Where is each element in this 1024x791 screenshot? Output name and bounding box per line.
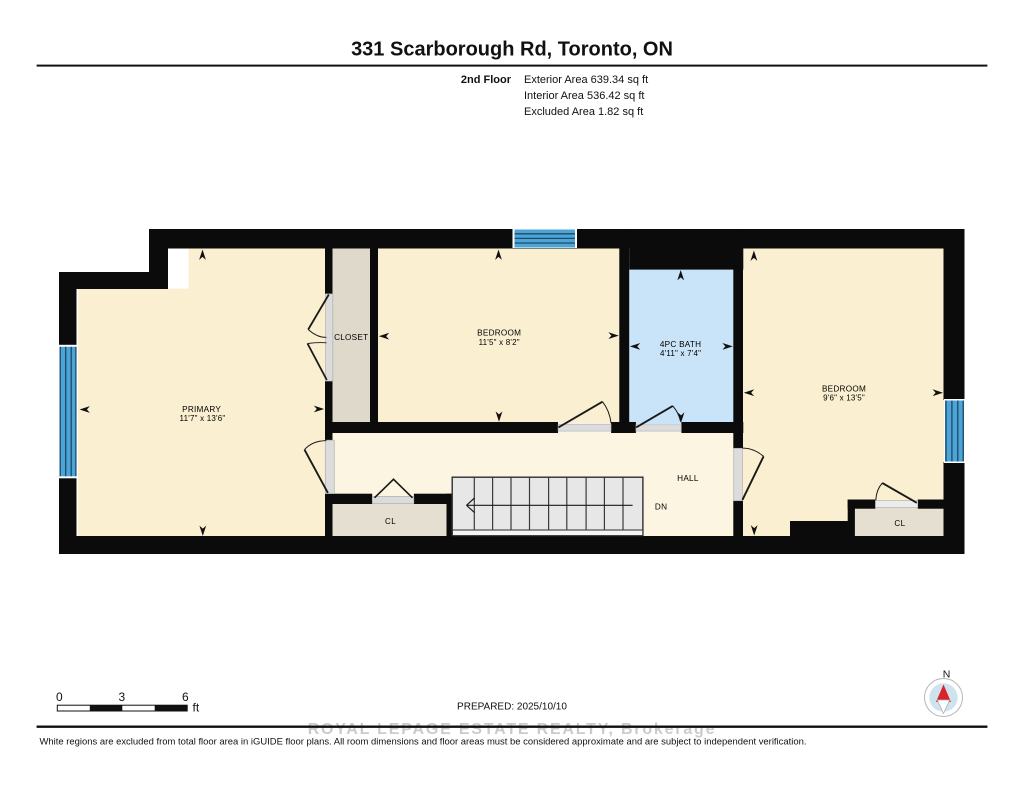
svg-text:Interior Area 536.42 sq ft: Interior Area 536.42 sq ft — [524, 90, 644, 102]
svg-text:Excluded Area 1.82 sq ft: Excluded Area 1.82 sq ft — [524, 106, 643, 118]
svg-text:HALL: HALL — [677, 474, 699, 483]
svg-text:0: 0 — [56, 690, 63, 704]
svg-text:CL: CL — [385, 517, 396, 526]
svg-text:11'5" x 8'2": 11'5" x 8'2" — [479, 338, 520, 347]
svg-text:N: N — [943, 669, 951, 681]
svg-text:PREPARED: 2025/10/10: PREPARED: 2025/10/10 — [457, 702, 567, 713]
svg-text:ft: ft — [193, 701, 200, 715]
svg-text:CLOSET: CLOSET — [334, 333, 368, 342]
svg-text:6: 6 — [182, 690, 189, 704]
svg-text:2nd Floor: 2nd Floor — [461, 74, 512, 86]
svg-text:BEDROOM: BEDROOM — [822, 384, 866, 393]
svg-text:3: 3 — [118, 690, 125, 704]
svg-text:Exterior Area 639.34 sq ft: Exterior Area 639.34 sq ft — [524, 74, 648, 86]
svg-text:DN: DN — [655, 502, 667, 511]
svg-text:ROYAL LEPAGE ESTATE REALTY, Br: ROYAL LEPAGE ESTATE REALTY, Brokerage — [308, 721, 717, 738]
svg-text:9'6" x 13'5": 9'6" x 13'5" — [823, 394, 865, 403]
svg-text:4'11" x 7'4": 4'11" x 7'4" — [660, 349, 701, 358]
svg-text:BEDROOM: BEDROOM — [477, 329, 521, 338]
svg-text:331 Scarborough Rd, Toronto, O: 331 Scarborough Rd, Toronto, ON — [351, 39, 673, 61]
svg-text:4PC BATH: 4PC BATH — [660, 340, 701, 349]
svg-text:11'7" x 13'6": 11'7" x 13'6" — [180, 414, 226, 423]
svg-text:White regions are excluded fro: White regions are excluded from total fl… — [40, 737, 807, 748]
svg-text:PRIMARY: PRIMARY — [182, 405, 221, 414]
svg-text:CL: CL — [894, 519, 905, 528]
